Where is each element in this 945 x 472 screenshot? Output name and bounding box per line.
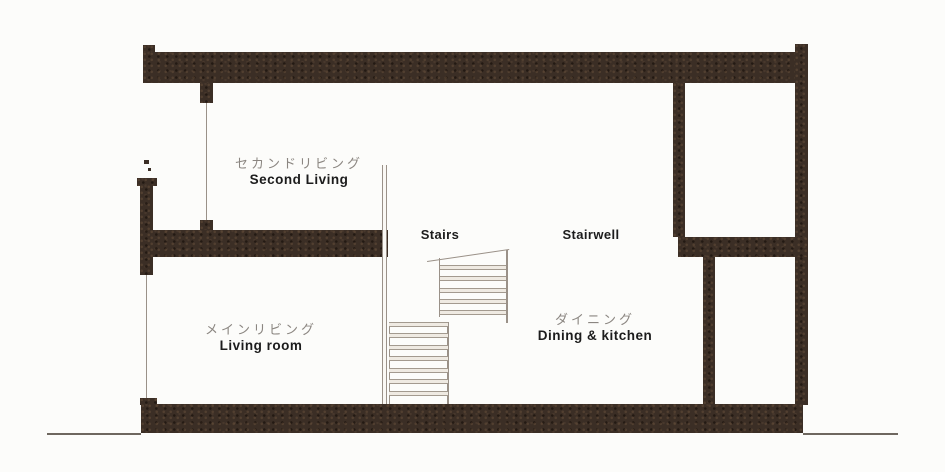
stair-rung: [440, 299, 506, 304]
stair-rung: [389, 379, 448, 384]
second-floor-slab: [150, 230, 388, 257]
ground-line-right: [803, 433, 898, 435]
label-stairwell: Stairwell: [541, 227, 641, 242]
stair-rung: [389, 391, 448, 396]
right-exterior-wall: [795, 44, 808, 405]
upper-room-floor-slab: [678, 237, 807, 257]
stair-rung: [389, 345, 448, 350]
ground-slab: [141, 404, 803, 433]
interior-wall-lower: [703, 257, 715, 404]
label-dining-en: Dining & kitchen: [515, 328, 675, 344]
label-second-living-en: Second Living: [219, 172, 379, 188]
stair-rung: [440, 265, 506, 270]
stair-rung: [440, 288, 506, 293]
label-second-living-jp: セカンドリビング: [219, 156, 379, 172]
roof-slab: [143, 52, 797, 83]
marker-dot: [148, 168, 151, 171]
stair-rung: [440, 310, 506, 315]
stair-rung: [389, 356, 448, 361]
column-mullion-line: [206, 103, 207, 220]
stair-rung: [440, 276, 506, 281]
stair-rung: [389, 333, 448, 338]
label-dining: ダイニング Dining & kitchen: [515, 312, 675, 344]
label-main-living: メインリビング Living room: [181, 322, 341, 354]
interior-wall-upper: [673, 83, 685, 237]
label-stairs: Stairs: [400, 227, 480, 242]
section-drawing: セカンドリビング Second Living Stairs Stairwell …: [0, 0, 945, 472]
stair-rung: [389, 368, 448, 373]
upper-column: [200, 83, 213, 103]
label-main-living-en: Living room: [181, 338, 341, 354]
marker-dot: [144, 160, 149, 164]
stairwell-rail-line: [382, 165, 387, 404]
label-main-living-jp: メインリビング: [181, 322, 341, 338]
ground-line-left: [47, 433, 141, 435]
stair-rung: [389, 322, 448, 327]
label-dining-jp: ダイニング: [515, 312, 675, 328]
left-wall-thin-line: [146, 275, 147, 404]
stair-upper-right-rail: [506, 250, 508, 323]
label-second-living: セカンドリビング Second Living: [219, 156, 379, 188]
